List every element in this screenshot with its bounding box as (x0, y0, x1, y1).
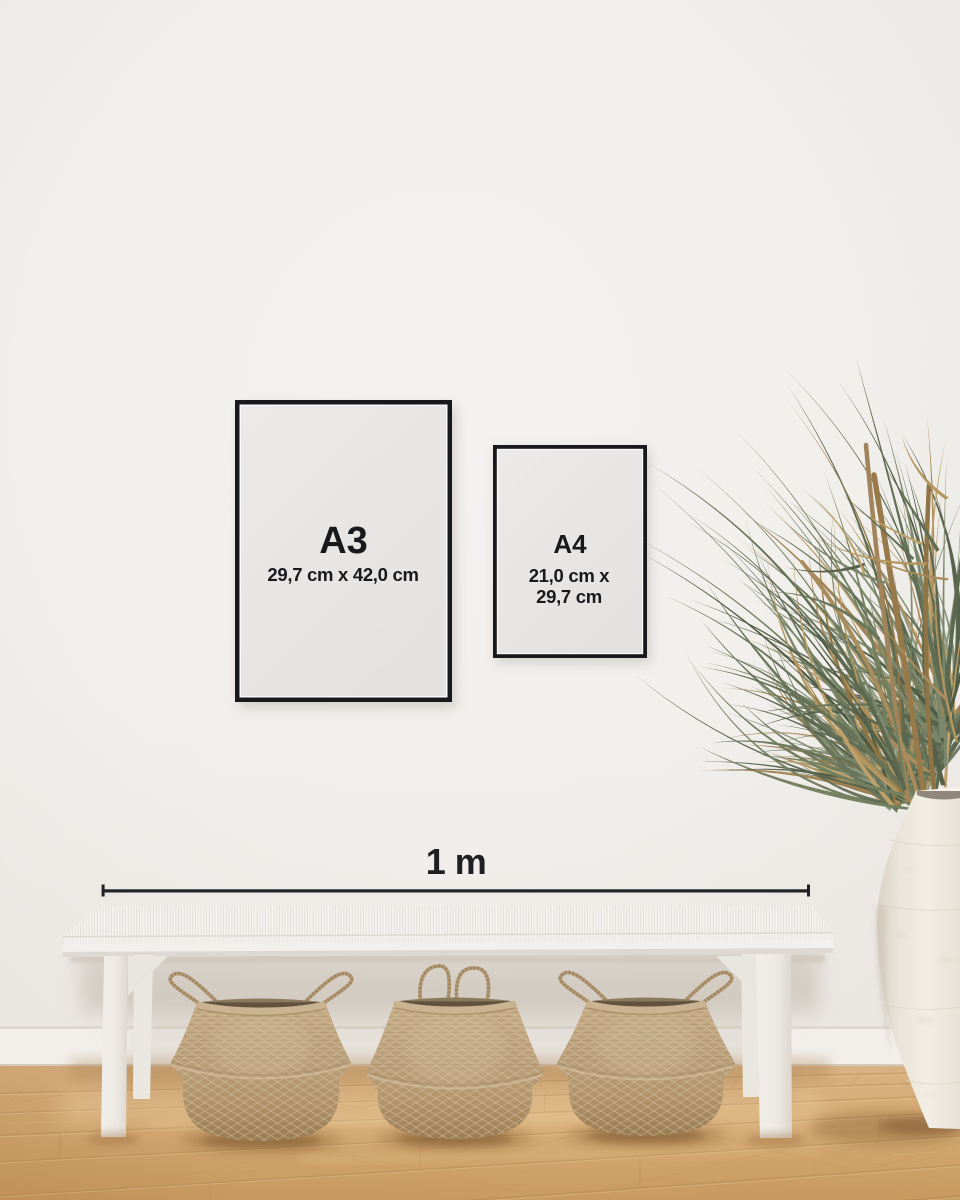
svg-text:29,7 cm x 42,0 cm: 29,7 cm x 42,0 cm (267, 564, 418, 585)
svg-text:A3: A3 (319, 520, 368, 562)
svg-text:1 m: 1 m (426, 841, 487, 882)
svg-text:A4: A4 (553, 529, 587, 559)
svg-text:21,0 cm x: 21,0 cm x (529, 565, 611, 586)
svg-text:29,7 cm: 29,7 cm (536, 586, 602, 607)
